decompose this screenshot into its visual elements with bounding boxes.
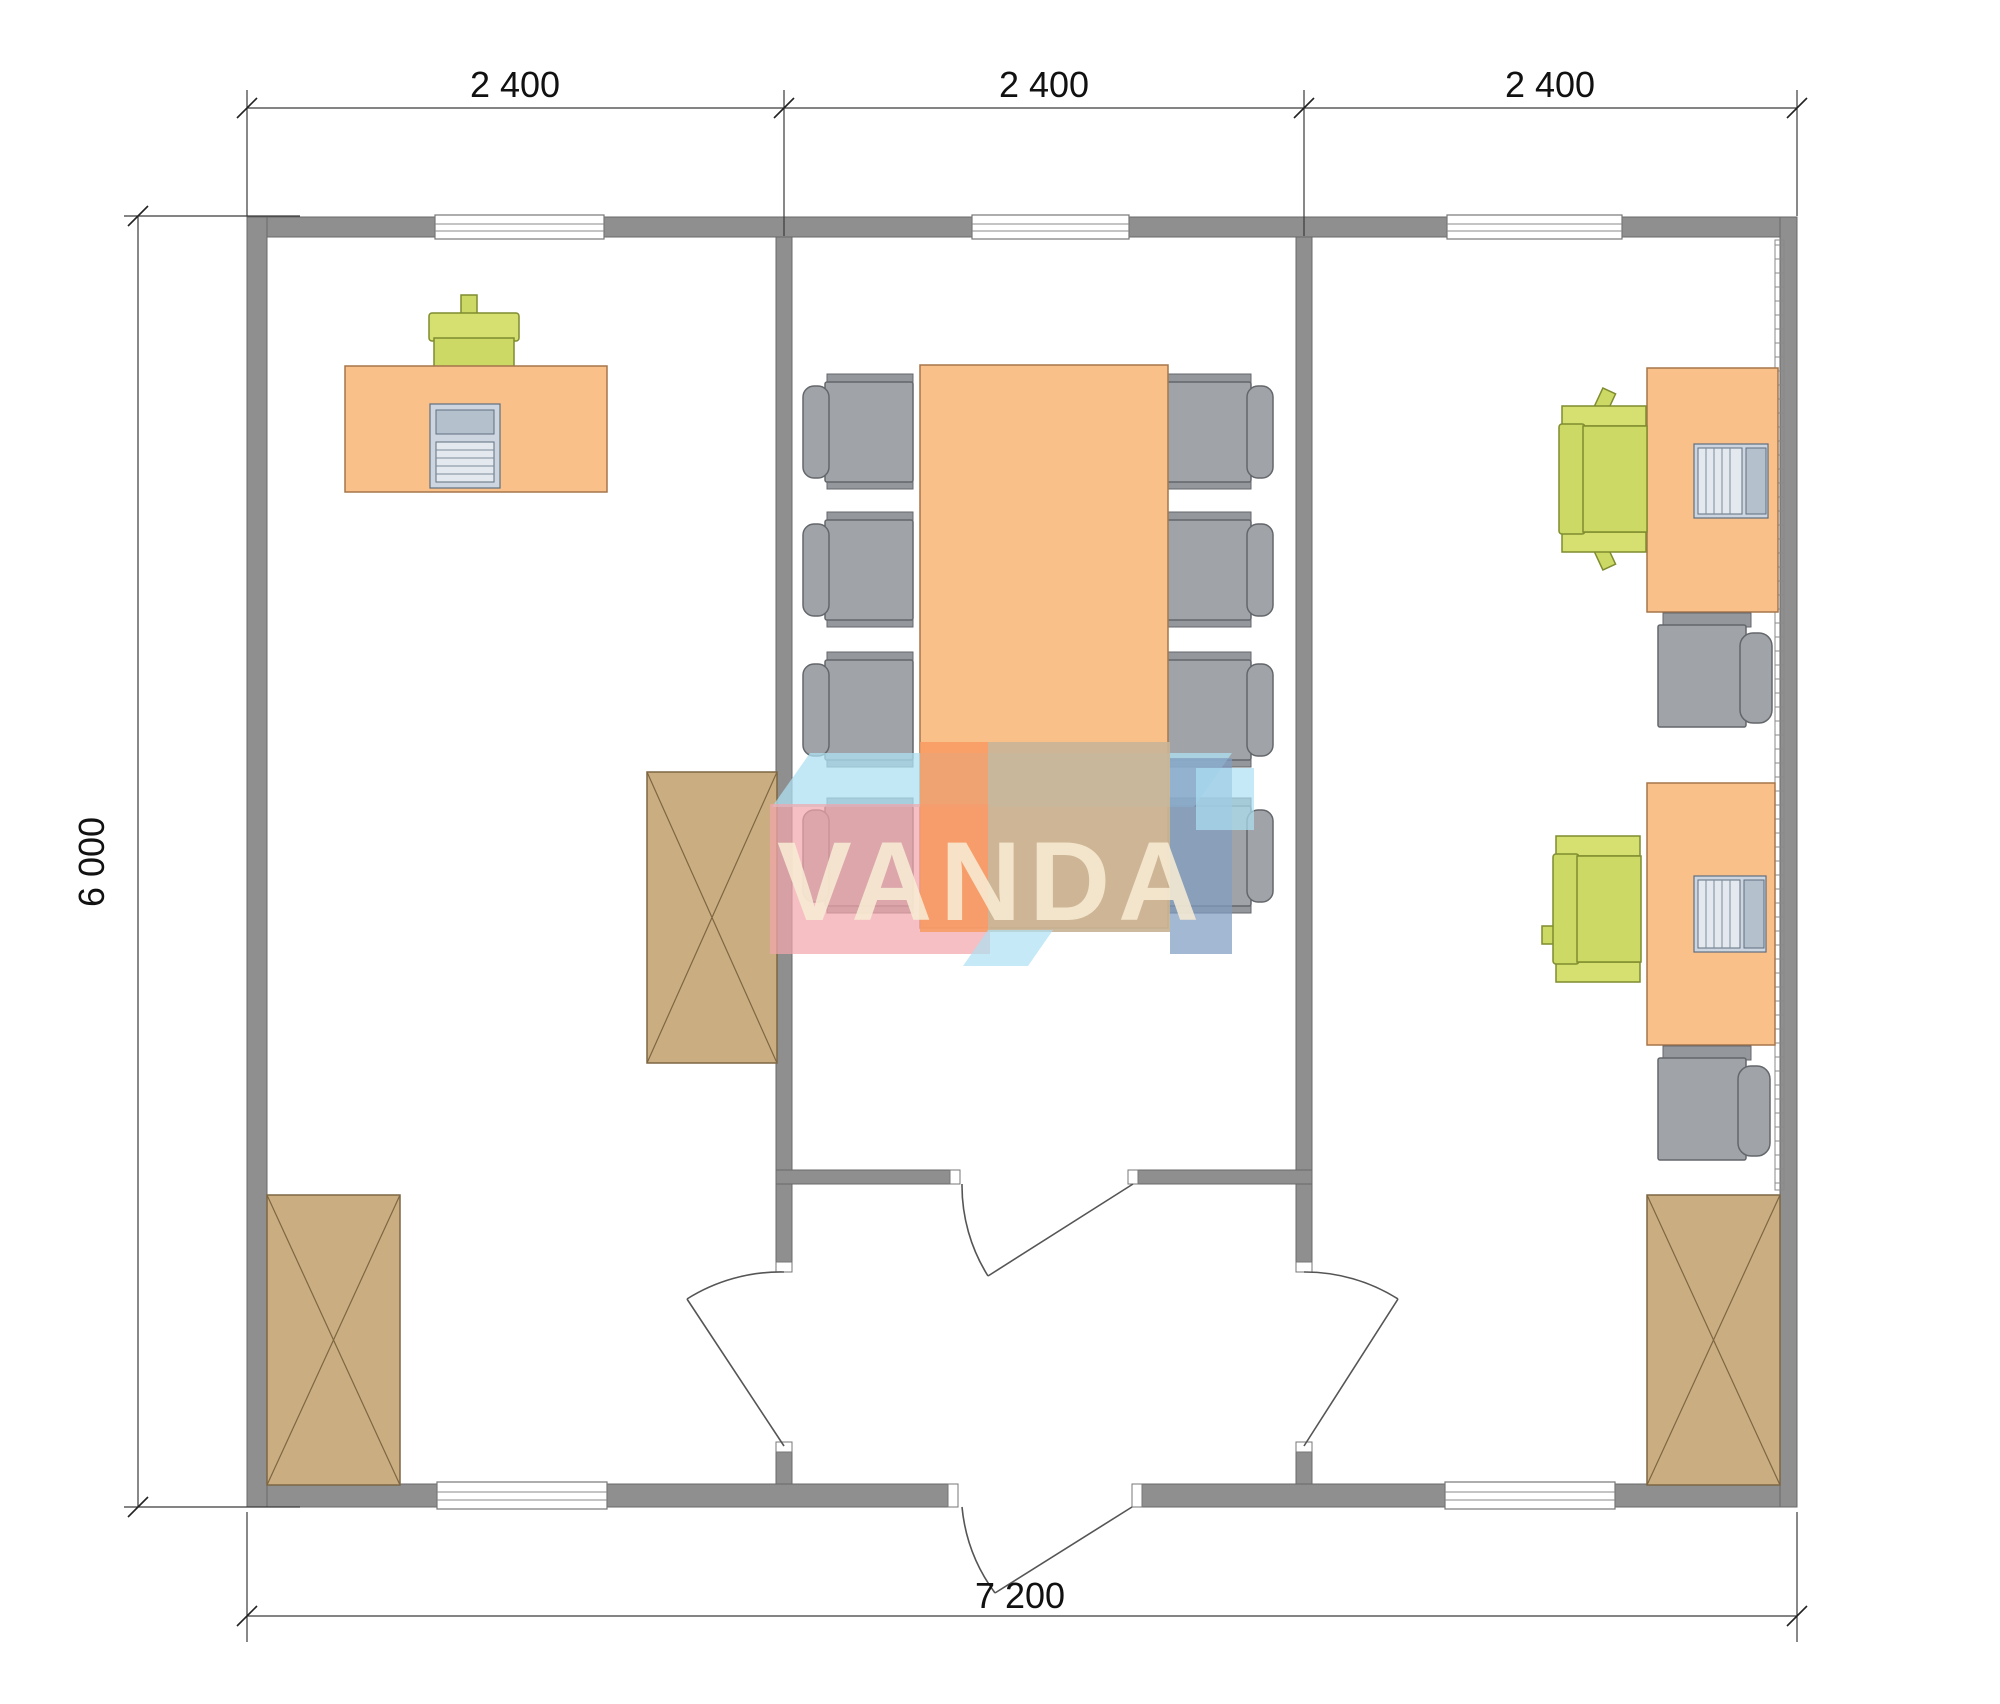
floor-plan-canvas: 2 400 2 400 2 400 6 000 7 200 VANDA bbox=[0, 0, 2000, 1704]
wall-divider-left-upper bbox=[776, 237, 792, 1262]
cabinet-bottom-right bbox=[1647, 1195, 1780, 1485]
desk-chair-gray bbox=[1658, 613, 1772, 727]
cabinet-tall bbox=[647, 772, 777, 1063]
desktop-computer bbox=[430, 404, 500, 488]
wall-bottom-1 bbox=[247, 1484, 437, 1507]
wall-divider-right-lower bbox=[1296, 1452, 1312, 1484]
dim-label-top-1: 2 400 bbox=[470, 64, 560, 105]
room-right-office bbox=[1542, 368, 1780, 1485]
floor-plan-drawing: 2 400 2 400 2 400 6 000 7 200 VANDA bbox=[0, 0, 2000, 1704]
door-frame bbox=[950, 1170, 960, 1184]
meeting-chair bbox=[1163, 798, 1273, 913]
window-bottom-right bbox=[1445, 1482, 1615, 1509]
dimension-top: 2 400 2 400 2 400 bbox=[237, 64, 1807, 236]
dim-label-top-2: 2 400 bbox=[999, 64, 1089, 105]
laptop bbox=[1694, 876, 1766, 952]
wall-top-2 bbox=[604, 217, 972, 237]
door-frame bbox=[1296, 1262, 1312, 1272]
meeting-chair bbox=[803, 798, 913, 913]
door-frame bbox=[1132, 1484, 1142, 1507]
door-room-right bbox=[1304, 1272, 1398, 1446]
meeting-chair bbox=[1163, 512, 1273, 627]
wall-bottom-2 bbox=[607, 1484, 948, 1507]
office-chair-green bbox=[1542, 836, 1641, 982]
wall-top-4 bbox=[1622, 217, 1797, 237]
laptop bbox=[1694, 444, 1768, 518]
door-frame bbox=[1296, 1442, 1312, 1452]
wall-hall-top-right bbox=[1138, 1170, 1312, 1184]
watermark-tail bbox=[963, 930, 1053, 966]
door-frames bbox=[776, 1170, 1312, 1507]
room-meeting bbox=[803, 365, 1273, 928]
dim-label-left: 6 000 bbox=[71, 817, 112, 907]
window-top-left bbox=[435, 215, 604, 239]
conference-table bbox=[920, 365, 1168, 928]
window-top-center bbox=[972, 215, 1129, 239]
window-top-right bbox=[1447, 215, 1622, 239]
window-bottom-left bbox=[437, 1482, 607, 1509]
meeting-chair bbox=[803, 374, 913, 489]
door-room-left bbox=[687, 1272, 784, 1446]
cabinet-bottom-left bbox=[267, 1195, 400, 1485]
meeting-chair bbox=[1163, 652, 1273, 767]
door-frame bbox=[1128, 1170, 1138, 1184]
wall-divider-left-lower bbox=[776, 1452, 792, 1484]
door-frame bbox=[776, 1262, 792, 1272]
door-frame bbox=[776, 1442, 792, 1452]
dim-label-top-3: 2 400 bbox=[1505, 64, 1595, 105]
wall-top-1 bbox=[247, 217, 435, 237]
meeting-chair bbox=[1163, 374, 1273, 489]
wall-bottom-4 bbox=[1615, 1484, 1797, 1507]
desk-chair-gray bbox=[1658, 1046, 1770, 1160]
door-frame bbox=[948, 1484, 958, 1507]
meeting-chair bbox=[803, 652, 913, 767]
office-chair-green bbox=[1559, 388, 1647, 570]
wall-left bbox=[247, 217, 267, 1507]
wall-hall-top-left bbox=[776, 1170, 950, 1184]
meeting-chair bbox=[803, 512, 913, 627]
room-left-office bbox=[267, 295, 777, 1485]
doors bbox=[687, 1184, 1398, 1593]
wall-bottom-3 bbox=[1142, 1484, 1445, 1507]
dimension-bottom: 7 200 bbox=[237, 1512, 1807, 1642]
wall-top-3 bbox=[1129, 217, 1447, 237]
door-hall-interior bbox=[962, 1184, 1133, 1276]
dim-label-bottom: 7 200 bbox=[975, 1575, 1065, 1616]
wall-divider-right-upper bbox=[1296, 237, 1312, 1262]
